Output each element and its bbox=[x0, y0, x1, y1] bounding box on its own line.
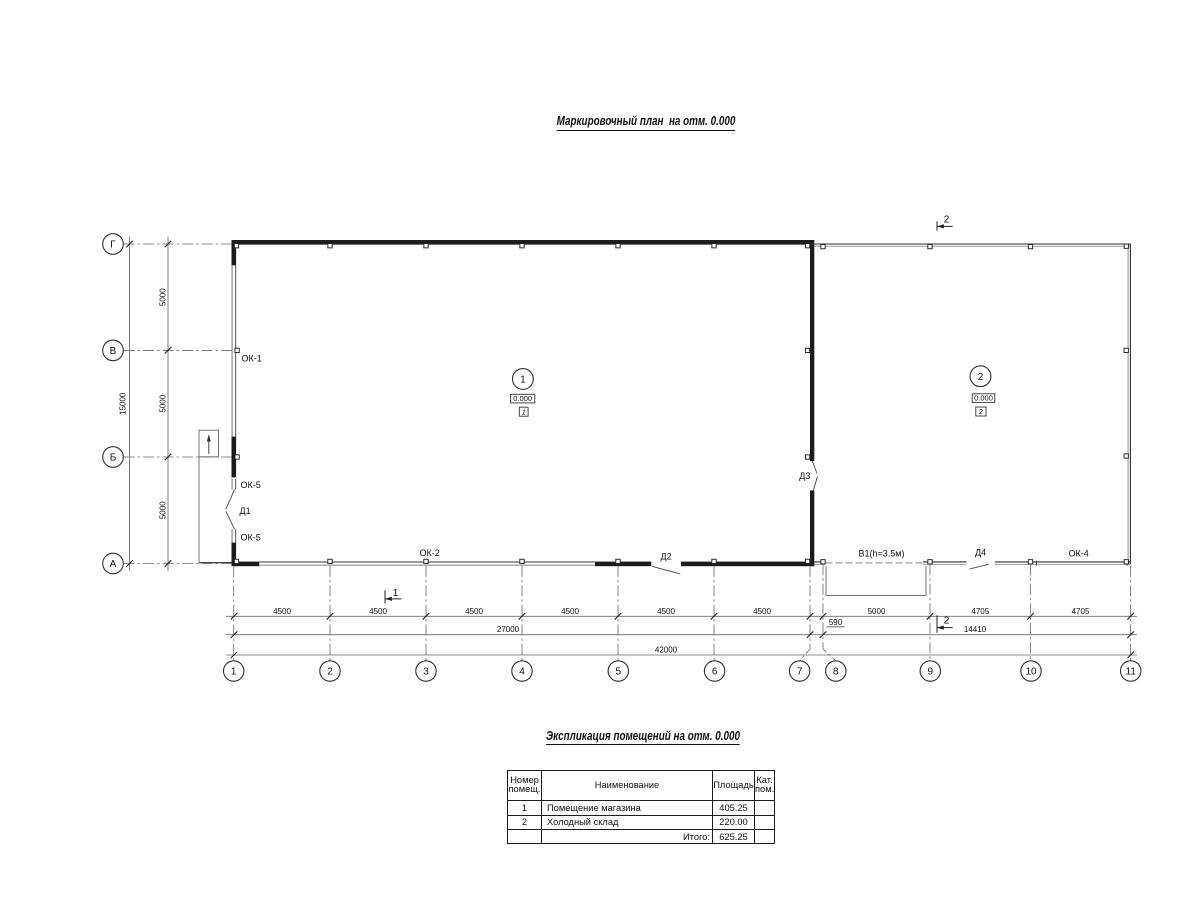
svg-text:14410: 14410 bbox=[964, 625, 987, 634]
svg-text:4500: 4500 bbox=[753, 607, 771, 616]
svg-text:5000: 5000 bbox=[159, 288, 168, 306]
svg-text:В: В bbox=[110, 346, 117, 357]
svg-text:5: 5 bbox=[616, 667, 622, 678]
svg-text:ОК-5: ОК-5 bbox=[241, 532, 261, 542]
svg-text:27000: 27000 bbox=[497, 625, 520, 634]
svg-text:Г: Г bbox=[110, 240, 116, 251]
svg-text:3: 3 bbox=[423, 667, 429, 678]
svg-text:Д2: Д2 bbox=[661, 551, 672, 561]
svg-text:4705: 4705 bbox=[971, 607, 989, 616]
svg-text:42000: 42000 bbox=[655, 645, 678, 654]
svg-text:В1(h=3.5м): В1(h=3.5м) bbox=[859, 549, 905, 559]
svg-text:1: 1 bbox=[522, 407, 526, 416]
svg-text:4705: 4705 bbox=[1072, 607, 1090, 616]
svg-text:7: 7 bbox=[797, 667, 803, 678]
svg-text:ОК-2: ОК-2 bbox=[420, 548, 440, 558]
svg-text:ОК-1: ОК-1 bbox=[242, 354, 262, 364]
svg-text:2: 2 bbox=[327, 667, 333, 678]
svg-text:590: 590 bbox=[829, 618, 843, 627]
svg-text:ОК-4: ОК-4 bbox=[1069, 549, 1089, 559]
svg-text:0.000: 0.000 bbox=[974, 394, 993, 403]
svg-text:ОК-5: ОК-5 bbox=[241, 480, 261, 490]
svg-text:0.000: 0.000 bbox=[513, 394, 532, 403]
svg-text:15000: 15000 bbox=[119, 392, 128, 415]
svg-text:2: 2 bbox=[979, 407, 983, 416]
svg-text:4500: 4500 bbox=[273, 607, 291, 616]
svg-text:2: 2 bbox=[978, 372, 984, 383]
svg-text:Д3: Д3 bbox=[799, 471, 810, 481]
svg-text:4500: 4500 bbox=[561, 607, 579, 616]
svg-text:2: 2 bbox=[944, 215, 950, 226]
svg-text:А: А bbox=[110, 559, 117, 570]
svg-text:Б: Б bbox=[110, 453, 117, 464]
svg-text:5000: 5000 bbox=[159, 394, 168, 412]
svg-text:4500: 4500 bbox=[465, 607, 483, 616]
svg-text:4500: 4500 bbox=[657, 607, 675, 616]
svg-text:Д1: Д1 bbox=[240, 506, 251, 516]
svg-text:6: 6 bbox=[712, 667, 718, 678]
svg-text:1: 1 bbox=[393, 588, 399, 599]
svg-text:2: 2 bbox=[944, 616, 950, 627]
svg-text:4: 4 bbox=[519, 667, 525, 678]
svg-text:4500: 4500 bbox=[369, 607, 387, 616]
svg-text:Д4: Д4 bbox=[975, 547, 986, 557]
svg-text:9: 9 bbox=[928, 667, 934, 678]
svg-text:5000: 5000 bbox=[868, 607, 886, 616]
svg-text:8: 8 bbox=[833, 667, 839, 678]
svg-text:10: 10 bbox=[1025, 667, 1037, 678]
svg-text:1: 1 bbox=[231, 667, 237, 678]
svg-text:11: 11 bbox=[1126, 667, 1137, 678]
svg-text:1: 1 bbox=[520, 375, 526, 386]
svg-text:5000: 5000 bbox=[159, 501, 168, 519]
